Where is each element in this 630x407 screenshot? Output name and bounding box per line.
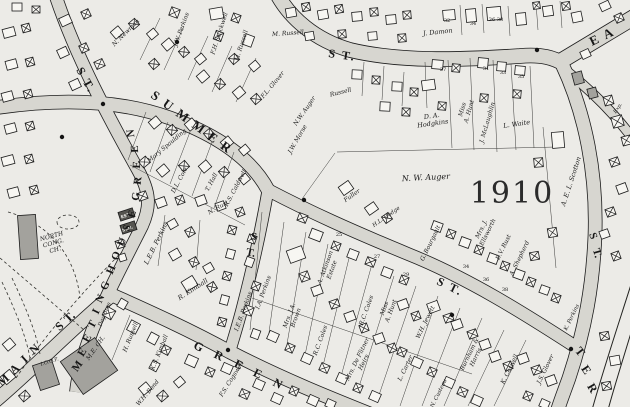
building-footprint [352,12,363,22]
street-name-letter: E [131,161,143,169]
building [352,12,363,22]
building-outbuilding [372,76,380,84]
building-outbuilding [227,225,237,235]
building [386,15,397,25]
building-outbuilding [402,108,410,116]
building-outbuilding [438,102,447,111]
building-outbuilding [21,23,31,33]
building-footprint [17,214,38,259]
building-footprint [392,82,402,92]
building-footprint [421,79,435,91]
building-footprint [515,13,526,26]
building [542,5,553,16]
building-footprint [551,132,564,149]
building-footprint [542,5,553,16]
building [609,355,620,366]
building-footprint [219,295,229,306]
building [304,31,314,40]
building-outbuilding [23,89,33,99]
street-name-letter: N [125,129,138,138]
map-canvas: EST.SCH.S T.S U M M E RS T.E AS T.MEETIN… [0,0,630,407]
building [285,7,296,18]
building-outbuilding [480,94,489,103]
house-number: 38 [502,287,508,293]
junction-dot [569,347,573,351]
house-number: 25 [336,232,342,238]
building-outbuilding [611,115,624,128]
building-outbuilding [599,331,609,340]
building-outbuilding [533,2,541,10]
building-footprint [386,15,397,25]
building-outbuilding [29,185,39,195]
year-overlay: 1910 [470,176,554,211]
building-outbuilding [32,6,40,13]
building-footprint [285,7,296,18]
building-outbuilding [24,154,34,164]
building-footprint [304,31,314,40]
building [551,132,564,149]
building [219,295,229,306]
junction-dot [535,48,539,52]
building-footprint [317,9,328,20]
building [12,3,22,11]
house-number: 36-38 [489,17,503,23]
building-outbuilding [534,158,544,168]
junction-dot [226,348,230,352]
building-outbuilding [217,317,227,327]
street-name-letter: E [129,145,141,153]
building-footprint [380,102,390,112]
building-outbuilding [547,227,557,237]
building-footprint [368,32,378,41]
building-outbuilding [601,381,611,390]
building-outbuilding [25,121,35,131]
building [421,79,435,91]
building-outbuilding [25,57,35,67]
building-outbuilding [338,30,347,39]
building [225,249,235,260]
building-outbuilding [452,64,461,73]
building-outbuilding [603,95,614,106]
building-outbuilding [334,4,343,13]
building-public [17,214,38,259]
building-footprint [12,3,22,11]
building-outbuilding [403,11,412,20]
house-number: 33 [500,70,506,76]
building-outbuilding [513,90,522,99]
building [380,102,390,112]
house-number: 34 [470,21,476,27]
building-outbuilding [222,271,232,281]
house-number: 32 [444,18,450,24]
junction-dot [101,102,105,106]
building-footprint [352,70,362,80]
house-number: 27 [440,67,446,73]
house-number: 36 [483,277,489,283]
house-number: 35 [518,74,524,80]
building [571,11,583,23]
building-footprint [609,355,620,366]
historical-map-1910: EST.SCH.S T.S U M M E RS T.E AS T.MEETIN… [0,0,630,407]
house-number: 34 [463,264,469,270]
building [368,32,378,41]
house-number: 27 [374,254,380,260]
building-outbuilding [561,1,570,10]
building-outbuilding [370,8,379,17]
building-outbuilding [398,34,407,43]
building-footprint [225,249,235,260]
junction-dot [450,313,454,317]
building [515,13,526,26]
building-outbuilding [410,88,418,96]
junction-dot [60,135,64,139]
building-footprint [571,11,583,23]
building-outbuilding [301,2,310,11]
junction-dot [302,198,306,202]
building [352,70,362,80]
building-outbuilding [529,251,539,260]
building [392,82,402,92]
house-number: 29 [403,272,409,278]
building [317,9,328,20]
house-number: 31 [483,66,489,72]
